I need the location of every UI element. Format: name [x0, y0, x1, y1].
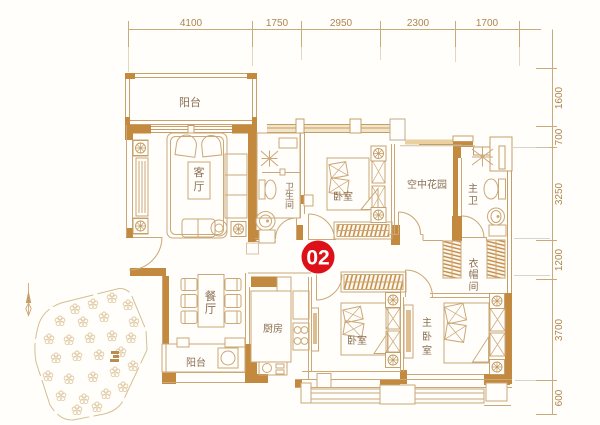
svg-text:帽: 帽 — [469, 268, 479, 281]
svg-text:阳台: 阳台 — [179, 95, 201, 109]
svg-text:3250: 3250 — [554, 182, 565, 205]
svg-text:02: 02 — [306, 247, 329, 270]
svg-text:室: 室 — [422, 344, 432, 357]
svg-text:主: 主 — [468, 183, 478, 195]
svg-text:2300: 2300 — [407, 18, 430, 29]
svg-text:间: 间 — [469, 280, 479, 293]
svg-text:1600: 1600 — [554, 86, 565, 109]
svg-text:卧室: 卧室 — [333, 190, 353, 203]
svg-text:间: 间 — [285, 199, 294, 210]
svg-text:卫: 卫 — [468, 196, 478, 207]
svg-text:2950: 2950 — [330, 18, 353, 29]
svg-text:衣: 衣 — [469, 257, 479, 270]
svg-text:厨房: 厨房 — [263, 322, 283, 335]
svg-text:主: 主 — [422, 317, 432, 329]
svg-text:卧室: 卧室 — [347, 334, 367, 347]
svg-text:1750: 1750 — [266, 18, 289, 29]
svg-text:1200: 1200 — [554, 248, 565, 271]
svg-text:厅: 厅 — [194, 181, 205, 193]
svg-text:卧: 卧 — [422, 330, 432, 343]
svg-text:阳台: 阳台 — [186, 356, 206, 369]
svg-text:1700: 1700 — [476, 18, 499, 29]
svg-text:空中花园: 空中花园 — [407, 178, 447, 191]
svg-text:餐: 餐 — [205, 289, 217, 303]
svg-text:客: 客 — [194, 165, 205, 179]
svg-text:3700: 3700 — [554, 318, 565, 341]
svg-text:4100: 4100 — [180, 18, 203, 29]
svg-text:厅: 厅 — [205, 304, 217, 316]
svg-text:700: 700 — [554, 128, 565, 145]
svg-text:600: 600 — [554, 389, 565, 406]
